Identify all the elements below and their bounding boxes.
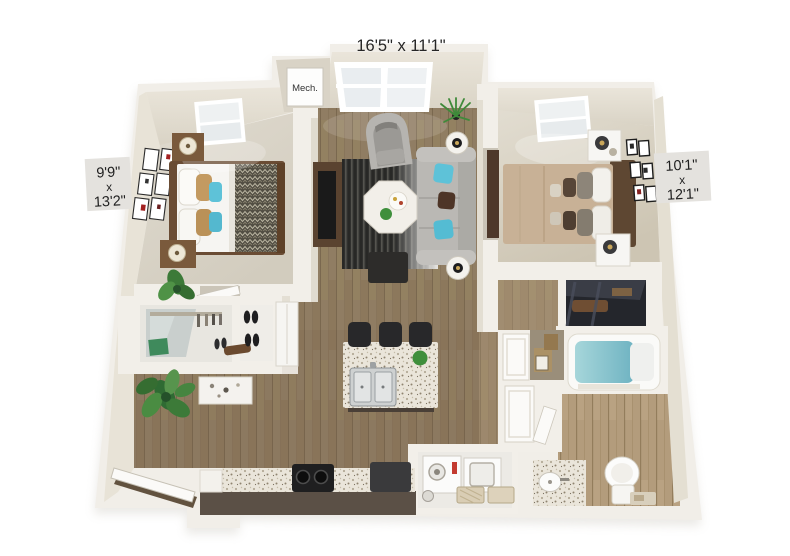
svg-text:Mech.: Mech.: [292, 83, 318, 94]
svg-text:12'1": 12'1": [667, 186, 700, 204]
svg-text:16'5" x 11'1": 16'5" x 11'1": [356, 37, 445, 55]
svg-text:13'2": 13'2": [93, 193, 126, 211]
svg-text:x: x: [679, 173, 686, 187]
svg-text:x: x: [106, 180, 113, 194]
